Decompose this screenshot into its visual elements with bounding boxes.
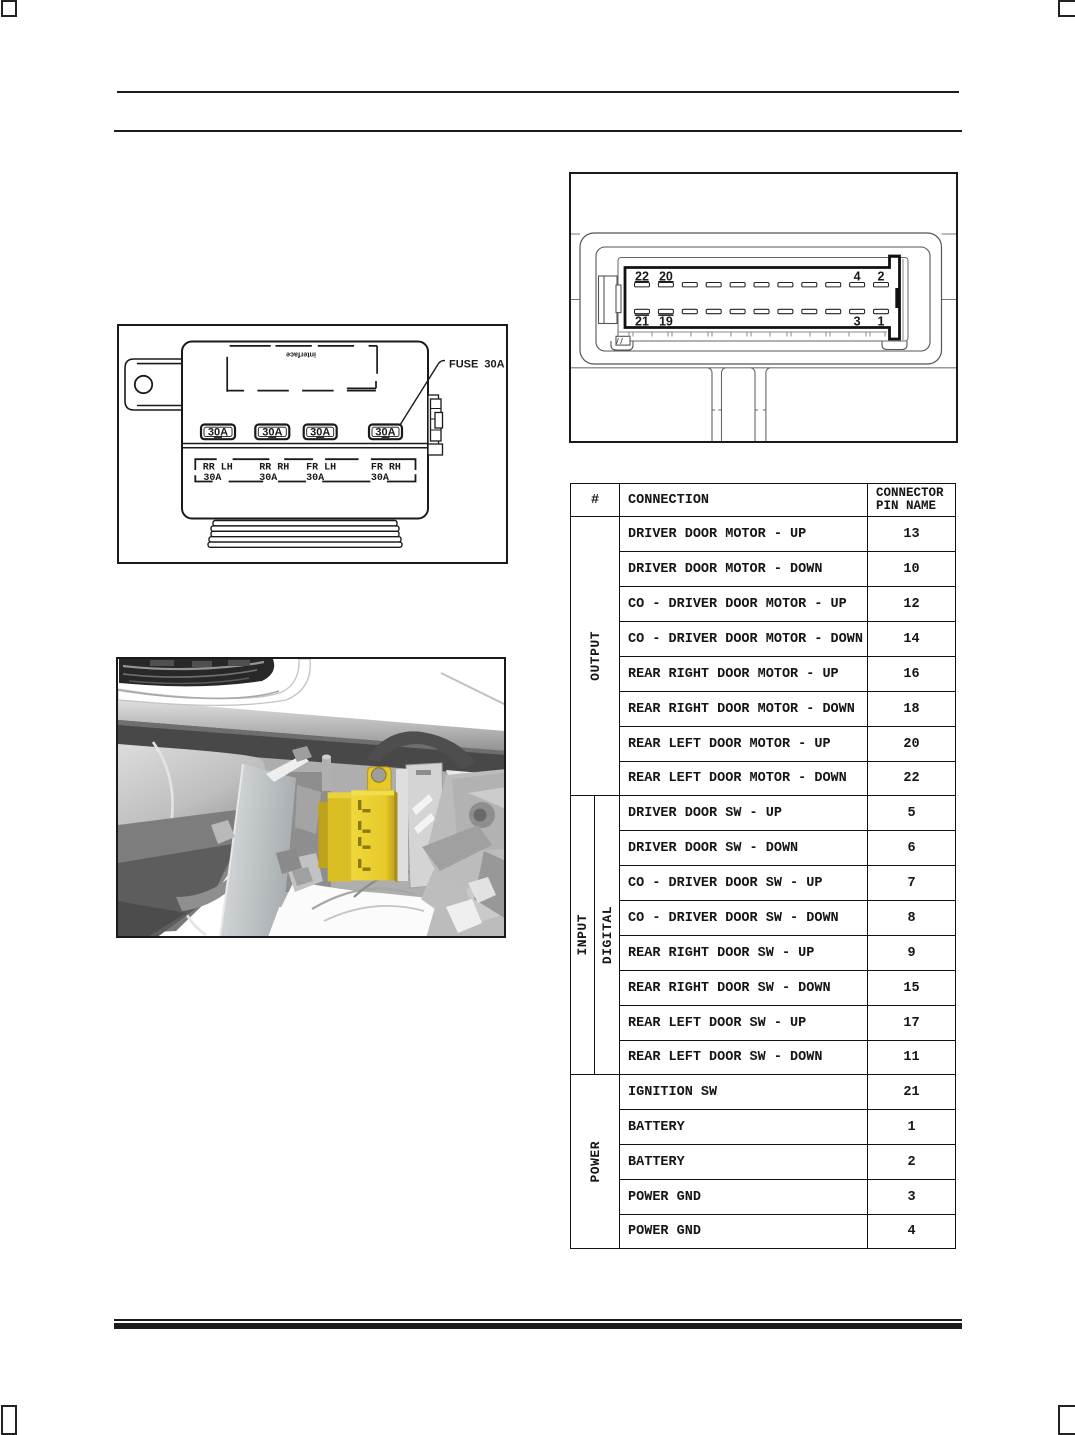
svg-text:interface: interface — [286, 350, 316, 359]
svg-text:RR LH: RR LH — [203, 463, 233, 474]
svg-text:4: 4 — [854, 270, 861, 284]
svg-text:30A: 30A — [203, 473, 221, 484]
svg-text:RR RH: RR RH — [259, 463, 289, 474]
svg-text:1: 1 — [878, 315, 885, 329]
svg-text:19: 19 — [659, 315, 673, 329]
svg-text:30A: 30A — [306, 473, 324, 484]
svg-text:30A: 30A — [259, 473, 277, 484]
svg-text:30A: 30A — [371, 473, 389, 484]
svg-text:3: 3 — [854, 315, 861, 329]
svg-text:FR LH: FR LH — [306, 463, 336, 474]
svg-text:FR RH: FR RH — [371, 463, 401, 474]
svg-text:2: 2 — [878, 270, 885, 284]
svg-text:21: 21 — [635, 315, 649, 329]
svg-text:FUSE 30A: FUSE 30A — [449, 359, 505, 371]
